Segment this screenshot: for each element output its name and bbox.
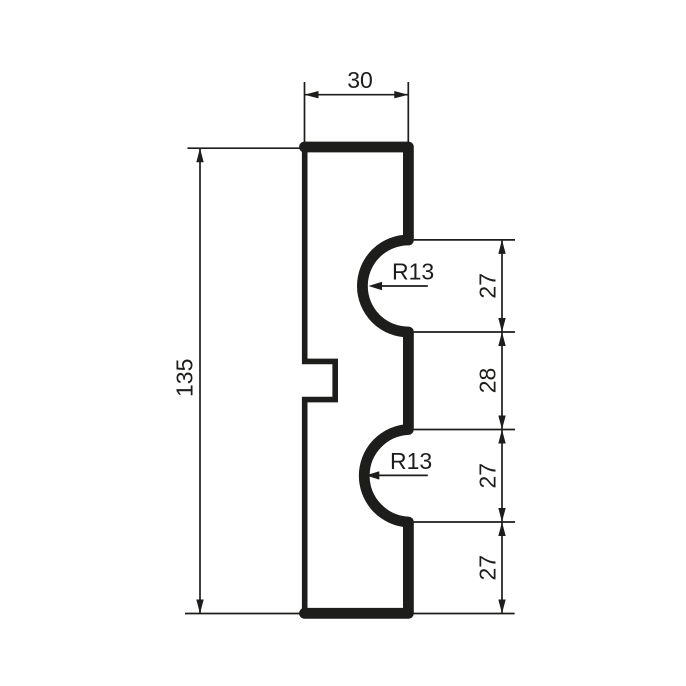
svg-text:135: 135 xyxy=(171,359,197,397)
svg-text:30: 30 xyxy=(347,67,373,93)
svg-text:R13: R13 xyxy=(390,448,432,474)
svg-text:27: 27 xyxy=(475,555,501,581)
svg-text:28: 28 xyxy=(475,368,501,394)
svg-text:27: 27 xyxy=(475,273,501,299)
svg-text:R13: R13 xyxy=(392,259,434,285)
svg-text:27: 27 xyxy=(475,463,501,489)
